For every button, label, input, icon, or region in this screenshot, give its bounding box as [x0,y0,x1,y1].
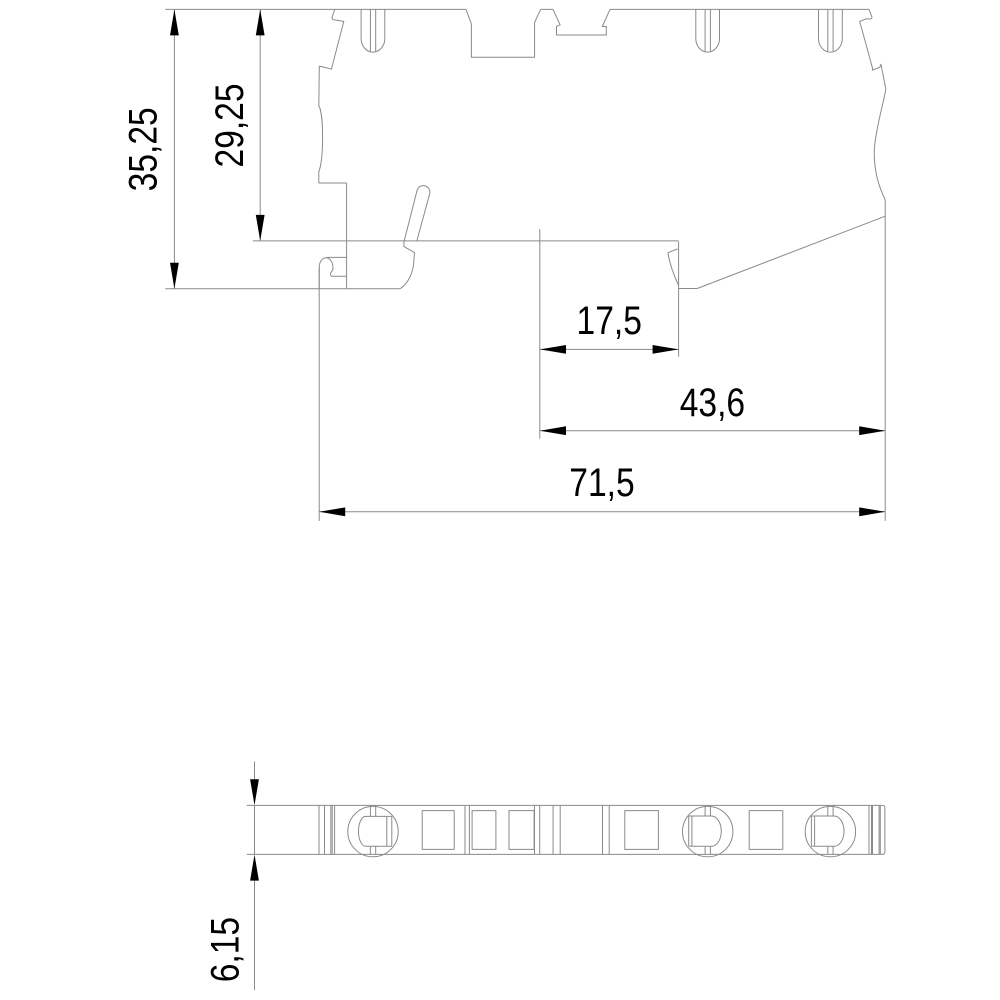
svg-text:6,15: 6,15 [203,917,247,982]
svg-text:29,25: 29,25 [207,83,251,167]
svg-text:43,6: 43,6 [680,380,745,424]
svg-text:35,25: 35,25 [121,107,165,191]
svg-text:71,5: 71,5 [569,460,634,504]
svg-text:17,5: 17,5 [577,298,642,342]
